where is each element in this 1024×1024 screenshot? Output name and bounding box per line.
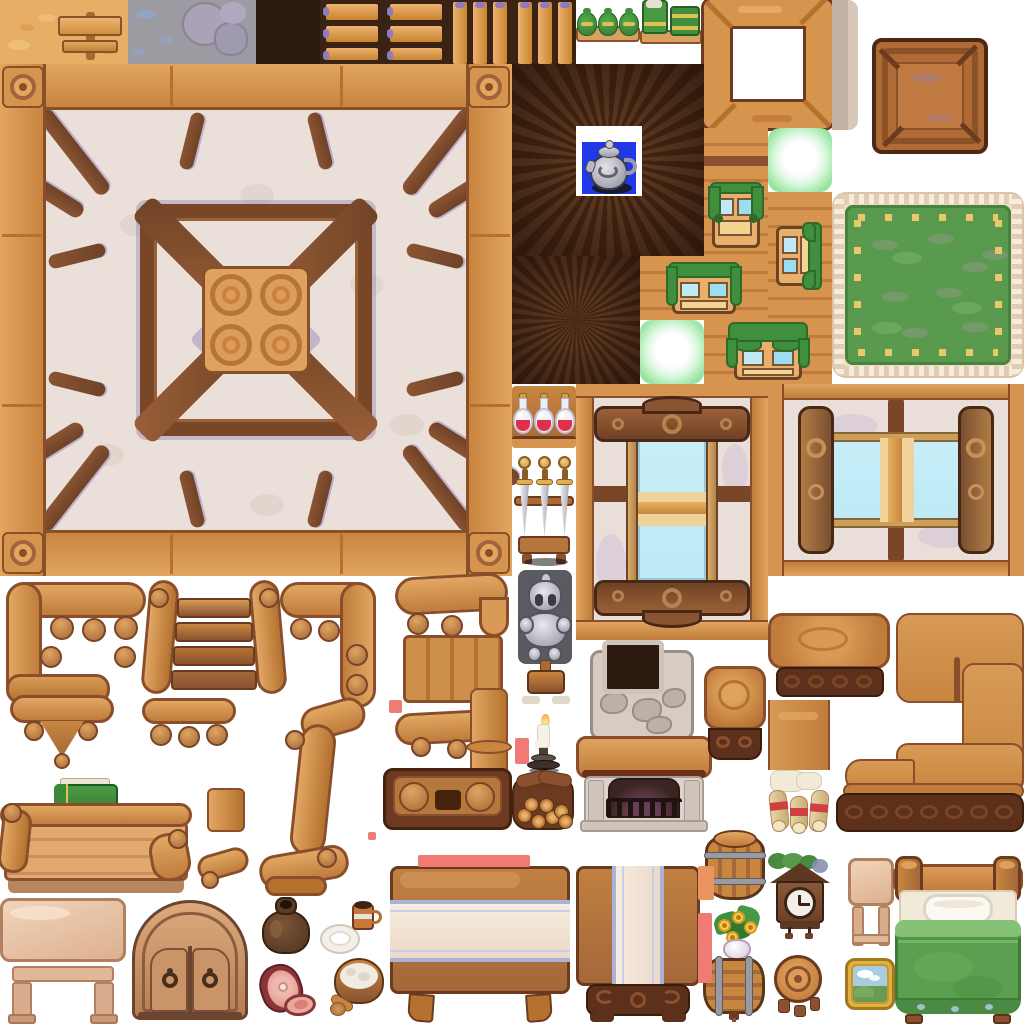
ham	[256, 960, 318, 1018]
table-cloth-v-part-6	[630, 992, 646, 1008]
window-h2	[704, 320, 832, 384]
mug-part-3	[372, 910, 382, 924]
window-h1-part-7	[666, 266, 678, 306]
tile-sand	[0, 0, 128, 64]
carpet	[832, 192, 1024, 378]
marker-1	[418, 855, 530, 867]
carpet-part-9	[962, 262, 988, 272]
window-up-part-2	[704, 156, 768, 166]
counter-c-part-9	[870, 805, 888, 819]
window-big-v-part-12	[636, 502, 708, 514]
glow-a	[768, 128, 832, 192]
table-cloth-v-part-4	[652, 866, 654, 992]
tile-stone	[128, 0, 256, 64]
window-big-v-part-18	[612, 418, 624, 430]
ceiling-main-part-47	[485, 549, 493, 557]
knight-part-7	[518, 616, 534, 634]
sacks-green	[576, 0, 640, 44]
stool-b-part-4	[778, 999, 790, 1013]
swords-part-12	[556, 479, 573, 485]
crate-part-9	[926, 114, 952, 121]
marker-4	[515, 738, 529, 764]
barrel-side-part-5	[732, 1018, 736, 1022]
clock-part-9	[799, 903, 810, 906]
carpet-part-19	[858, 349, 998, 356]
fireplace-part-4	[662, 688, 686, 708]
clock-part-4	[812, 859, 828, 873]
shelf-h-part-5	[323, 29, 329, 38]
shelf-h-part-6	[326, 48, 378, 60]
window-h1-part-8	[730, 266, 742, 306]
marker-4-part-1	[515, 738, 529, 764]
table-end-part-5	[808, 675, 824, 688]
counter-c-part-5	[954, 657, 960, 703]
marker-5-part-1	[389, 700, 402, 713]
bench-corner-l	[0, 578, 152, 710]
shelf-v-part-9	[520, 2, 530, 8]
carpet-part-2	[834, 194, 1022, 204]
shelf-v-part-6	[493, 2, 507, 64]
window-side-part-7	[802, 222, 816, 242]
steps-part-5	[173, 646, 255, 666]
clock-part-10	[780, 921, 820, 929]
swords-part-4	[516, 479, 533, 485]
bench-back-r	[393, 573, 512, 705]
stool-a-part-5	[738, 736, 752, 748]
stool-b	[772, 953, 824, 1017]
shelf-h	[320, 0, 448, 64]
carpet-part-20	[854, 220, 861, 350]
table-cloth-h	[388, 866, 572, 1022]
table-cloth-h-part-6	[407, 993, 435, 1023]
marker-3-part-1	[698, 913, 712, 983]
shelf-h-part-9	[387, 7, 393, 16]
window-big-h-part-17	[808, 484, 824, 500]
table-cloth-v-part-7	[596, 990, 614, 1004]
mats-green-part-4	[670, 6, 700, 36]
pendant-part-4	[40, 721, 84, 757]
floor-dark	[512, 256, 640, 384]
potions-part-7	[517, 412, 523, 418]
fireplace-part-15	[580, 820, 708, 832]
window-big-h-part-15	[798, 406, 834, 554]
wall-strip-tan-part-2	[848, 0, 858, 130]
frame-wood-part-6	[738, 6, 782, 13]
carpet-part-3	[834, 366, 1022, 376]
window-big-h	[768, 384, 1024, 576]
bed-part-10	[895, 920, 1021, 940]
clock-part-14	[805, 933, 813, 939]
table-cloth-v-part-3	[622, 866, 624, 992]
window-big-v-part-21	[642, 610, 702, 628]
potions-part-17	[559, 412, 565, 418]
table-light	[0, 898, 126, 1024]
counter-c-part-11	[920, 805, 938, 819]
carpet-part-13	[962, 322, 988, 332]
table-cloth-h-part-2	[400, 872, 520, 888]
window-h2-part-10	[798, 338, 810, 368]
painting-part-4	[869, 975, 880, 981]
bed-part-17	[905, 1014, 923, 1024]
table-light-part-5	[94, 982, 114, 1016]
bench-scurve-part-5	[285, 730, 305, 750]
window-big-h-part-14	[888, 438, 902, 522]
carpet-part-18	[858, 214, 998, 221]
carpet-part-8	[928, 234, 954, 244]
swords-part-13	[560, 485, 569, 537]
window-up	[704, 128, 768, 256]
foot-block-part-3	[399, 782, 429, 812]
floor-dark-kettle-part-8	[605, 140, 614, 149]
tile-sand-part-3	[38, 14, 56, 22]
window-big-v-part-7	[750, 384, 768, 640]
marker-6	[368, 832, 376, 840]
firewood	[510, 770, 576, 832]
window-big-v-part-6	[576, 384, 594, 640]
marker-1-part-1	[418, 855, 530, 867]
bench-corner-r-part-6	[346, 674, 368, 696]
bench-low-part-5	[2, 803, 22, 823]
barrel-up-part-2	[713, 830, 757, 848]
window-big-h-part-6	[768, 384, 1024, 400]
fireplace-part-14	[606, 798, 682, 818]
window-big-h-part-7	[768, 560, 1024, 576]
tile-stone-part-7	[132, 48, 146, 55]
bed-part-12	[953, 976, 1003, 1000]
shelf-h-part-7	[323, 51, 329, 60]
sacks-green-part-9	[625, 8, 633, 14]
sacks-green-part-3	[583, 8, 591, 14]
barrel-side-part-2	[715, 956, 723, 1016]
fireplace-part-11	[588, 780, 604, 822]
fireplace-part-6	[646, 716, 672, 734]
ceiling-main-part-31	[340, 534, 343, 574]
firewood-part-5	[531, 814, 546, 829]
fireplace-part-7	[602, 640, 664, 694]
carpet-part-7	[872, 240, 898, 250]
shelf-v-part-3	[455, 2, 465, 8]
ceiling-main-part-63	[272, 336, 290, 354]
bed-part-15	[951, 1006, 959, 1012]
cabinet-part-9	[202, 972, 218, 988]
bed-part-3	[901, 861, 917, 869]
shelf-v-part-5	[475, 2, 485, 8]
carpet-part-15	[892, 252, 922, 264]
window-big-v-part-23	[612, 590, 624, 602]
tile-dark-part-1	[256, 0, 320, 64]
ceiling-main	[0, 64, 512, 576]
ceiling-main-part-27	[466, 64, 512, 576]
window-h1-part-3	[680, 282, 700, 298]
table-side-light-part-4	[852, 934, 890, 944]
bench-back-r-part-3	[407, 613, 429, 635]
tile-sand-part-7	[58, 16, 122, 36]
bench-corner-r-part-5	[346, 644, 368, 666]
barrel-side-part-3	[745, 956, 753, 1016]
tile-sand-part-5	[20, 24, 34, 31]
bench-back-r-part-2	[479, 597, 509, 637]
bench-scurve	[255, 700, 370, 898]
stool-b-part-5	[794, 1005, 806, 1017]
firewood-part-10	[558, 814, 573, 829]
bench-low-part-7	[8, 881, 184, 893]
glow-b	[640, 320, 704, 384]
shelf-v-part-8	[518, 2, 532, 64]
cabinet-part-8	[162, 972, 178, 988]
window-big-v-part-16	[642, 396, 702, 414]
post-balls-part-4	[206, 724, 228, 746]
bench-low-part-6	[168, 829, 188, 849]
steps-part-4	[175, 622, 253, 642]
cabinet	[128, 898, 252, 1024]
bench-corner-r-part-4	[318, 620, 340, 642]
shelf-v-part-10	[538, 2, 552, 64]
ham-part-3	[278, 982, 288, 992]
counter-c-part-13	[970, 805, 988, 819]
table-cloth-h-part-4	[390, 910, 570, 912]
table-mid-part-1	[768, 700, 830, 770]
window-big-v-part-19	[720, 418, 732, 430]
window-side	[768, 192, 832, 320]
fireplace	[576, 640, 712, 832]
sack-part-1	[262, 910, 310, 954]
bowl-part-3	[346, 968, 356, 976]
table-cloth-h-part-5	[390, 950, 570, 952]
shelf-h-part-12	[390, 48, 442, 60]
window-h2-part-7	[734, 340, 762, 352]
ceiling-main-part-35	[470, 404, 510, 407]
counter-c-part-14	[995, 805, 1013, 819]
flowers-part-9	[748, 925, 753, 930]
ceiling-main-part-38	[19, 83, 27, 91]
mug	[352, 900, 382, 930]
mug-part-2	[354, 901, 372, 909]
sacks-green-part-6	[604, 8, 612, 14]
post-balls-part-2	[150, 724, 172, 746]
table-light-part-2	[10, 906, 70, 920]
carpet-part-6	[845, 205, 1011, 365]
table-mid-part-2	[778, 712, 818, 720]
crate-part-8	[912, 74, 942, 82]
table-mid	[768, 700, 830, 770]
crate	[872, 38, 988, 154]
potions	[512, 386, 576, 456]
window-h2-part-6	[728, 322, 808, 342]
window-side-part-3	[782, 236, 798, 254]
stool-b-part-3	[794, 975, 802, 983]
firewood-part-7	[524, 797, 539, 812]
marker-2-part-1	[698, 866, 714, 900]
column-frag-part-2	[466, 740, 512, 754]
bed-part-16	[985, 1004, 993, 1010]
carpet-part-10	[882, 292, 908, 302]
window-big-v-part-14	[706, 436, 718, 584]
mats-green-part-3	[646, 0, 662, 8]
mats-green	[640, 0, 702, 46]
bed	[893, 856, 1023, 1024]
counter-c	[835, 613, 1024, 832]
swords-part-10	[558, 456, 571, 469]
shelf-h-part-3	[323, 7, 329, 16]
table-cloth-v-part-2	[612, 866, 664, 992]
painting-part-5	[854, 986, 874, 997]
scrolls-part-11	[812, 820, 826, 832]
bench-low	[0, 803, 192, 898]
fireplace-part-2	[600, 692, 628, 714]
ceiling-main-part-30	[170, 534, 173, 574]
swords-part-2	[518, 456, 531, 469]
sacks-green-part-7	[602, 22, 614, 26]
firewood-part-8	[539, 798, 554, 813]
flowers	[714, 903, 760, 961]
bed-part-18	[993, 1014, 1011, 1024]
ceiling-main-part-26	[0, 64, 46, 576]
carpet-part-16	[952, 302, 982, 314]
window-big-h-part-8	[768, 384, 784, 576]
ceiling-main-part-25	[0, 530, 512, 576]
bed-part-13	[895, 998, 1021, 1014]
glow-a-part-1	[768, 128, 832, 192]
sacks-green-part-4	[581, 22, 593, 26]
table-cloth-v-part-8	[662, 990, 680, 1004]
bench-scurve-part-4	[265, 876, 327, 896]
barrel-side-part-1	[703, 958, 765, 1014]
glow-b-part-1	[640, 320, 704, 384]
window-h2-part-4	[772, 350, 794, 366]
rail-bottom-r-part-3	[447, 739, 467, 759]
sack	[260, 896, 312, 956]
window-up-part-10	[714, 214, 723, 223]
knight-part-13	[522, 696, 540, 704]
shelf-v-part-7	[495, 2, 505, 8]
ceiling-main-part-57	[222, 286, 240, 304]
flowers-part-7	[736, 915, 741, 920]
table-cloth-v-part-9	[590, 1014, 614, 1022]
shelf-v	[448, 0, 576, 64]
table-side-light	[848, 858, 894, 955]
window-up-part-11	[749, 214, 758, 223]
window-up-part-6	[718, 220, 752, 236]
shelf-h-part-8	[390, 4, 442, 20]
tile-stone-part-4	[220, 2, 246, 24]
steps	[145, 578, 283, 700]
stool-a-part-4	[716, 736, 730, 748]
ceiling-main-part-33	[2, 404, 42, 407]
post-frag	[203, 788, 249, 832]
shelf-h-part-2	[326, 4, 378, 20]
stool-a	[704, 666, 766, 762]
post-balls	[138, 698, 240, 766]
window-big-h-part-9	[1008, 384, 1024, 576]
scrolls-part-10	[810, 803, 829, 813]
frame-wood-part-7	[752, 115, 792, 122]
shelf-h-part-4	[326, 26, 378, 42]
post-balls-part-1	[142, 698, 236, 724]
bench-corner-l-part-8	[114, 646, 136, 668]
table-cloth-h-part-7	[525, 993, 553, 1023]
tile-stone-part-5	[136, 10, 156, 19]
ceiling-main-part-6	[250, 494, 284, 516]
sack-part-4	[270, 920, 282, 938]
bench-corner-r	[278, 578, 380, 710]
ceiling-main-part-7	[240, 184, 274, 206]
scrolls-part-8	[792, 822, 806, 834]
window-h2-part-5	[742, 368, 794, 376]
knight-part-14	[552, 696, 570, 704]
bench-corner-l-part-7	[40, 646, 62, 668]
stool-a-part-2	[718, 680, 750, 710]
table-light-part-7	[90, 1014, 118, 1024]
carpet-part-17	[872, 322, 902, 334]
window-big-v-part-22	[662, 588, 682, 608]
bench-corner-l-part-4	[50, 616, 74, 640]
wall-strip-tan	[832, 0, 858, 130]
knight-part-5	[548, 594, 556, 606]
ceiling-main-part-5	[390, 414, 424, 436]
shelf-h-part-13	[387, 51, 393, 60]
window-h1-part-4	[708, 282, 728, 298]
plate-part-2	[329, 931, 351, 946]
table-cloth-v-part-10	[662, 1014, 686, 1022]
flowers-part-5	[722, 923, 727, 928]
shelf-v-part-13	[560, 2, 570, 8]
pendant-part-1	[10, 695, 114, 723]
knight-part-8	[556, 616, 572, 634]
window-big-h-part-16	[806, 438, 826, 458]
stool-b-part-6	[810, 997, 820, 1011]
floor-dark-part-2	[512, 256, 640, 384]
ceiling-main-part-41	[485, 83, 493, 91]
window-big-v-part-13	[626, 436, 638, 584]
ceiling-main-part-28	[170, 66, 173, 106]
potions-part-12	[538, 412, 544, 418]
floor-dark-kettle-part-11	[598, 164, 618, 178]
carpet-part-4	[834, 194, 844, 376]
clock-part-13	[785, 933, 793, 939]
window-h2-part-8	[772, 340, 800, 352]
ceiling-main-part-61	[222, 336, 240, 354]
scrolls-part-7	[790, 808, 808, 816]
mats-green-part-5	[644, 22, 666, 26]
pendant-part-5	[54, 753, 70, 769]
shelf-v-part-1	[448, 0, 576, 64]
bench-back-r-part-4	[441, 615, 463, 637]
knight-part-4	[535, 594, 543, 606]
bed-part-8	[933, 900, 983, 908]
shelf-h-part-11	[387, 29, 393, 38]
tile-dark	[256, 0, 320, 64]
foot-block-part-5	[435, 790, 461, 810]
fireplace-part-12	[684, 780, 700, 822]
swords-part-9	[540, 485, 549, 537]
bed-part-14	[917, 1004, 925, 1010]
carpet-part-12	[902, 328, 928, 338]
window-big-h-part-19	[966, 438, 986, 458]
tile-stone-part-3	[214, 22, 248, 56]
marker-3	[698, 913, 712, 983]
marker-2	[698, 866, 714, 900]
window-side-part-8	[802, 270, 816, 290]
tile-stone-part-6	[158, 36, 174, 44]
bowl	[330, 956, 386, 1016]
bench-corner-r-part-3	[290, 618, 312, 640]
table-light-part-6	[8, 1014, 36, 1024]
knight-part-12	[527, 670, 565, 694]
scrolls	[766, 768, 832, 832]
bench-corner-l-part-6	[114, 616, 138, 640]
bed-part-5	[999, 861, 1015, 869]
scrolls-part-2	[796, 772, 822, 790]
